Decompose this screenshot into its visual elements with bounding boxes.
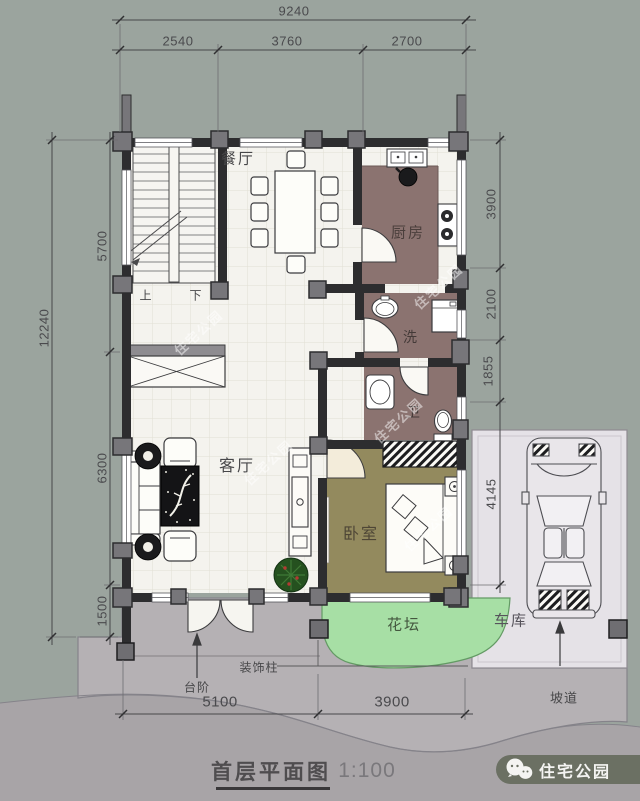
floor-plan-page: 9240 2540 3760 2700 12240 5700 6300 1500…: [0, 0, 640, 801]
dim-total-width: 9240: [279, 4, 310, 19]
dim-top-seg3: 2700: [392, 34, 423, 49]
wechat-icon: [505, 758, 533, 781]
wardrobe: [383, 441, 457, 467]
drawing-title: 首层平面图: [211, 756, 331, 786]
room-label-kitchen: 厨房: [391, 222, 425, 243]
steps-label: 台阶: [184, 679, 210, 696]
staircase: [127, 145, 215, 283]
dim-left-seg3: 1500: [95, 596, 110, 627]
dim-left-seg2: 6300: [95, 453, 110, 484]
room-label-dining: 餐厅: [221, 148, 255, 169]
drawing-scale: 1:100: [338, 759, 396, 783]
tv-cabinet: [289, 448, 311, 556]
dim-bottom-seg2: 3900: [374, 694, 409, 711]
room-label-flowerbed: 花坛: [387, 614, 421, 635]
dim-right-seg2: 2100: [484, 289, 499, 320]
dim-left-seg1: 5700: [95, 231, 110, 262]
dim-right-seg3: 1855: [481, 356, 496, 387]
dim-right-seg1: 3900: [484, 189, 499, 220]
room-label-garage: 车库: [494, 610, 528, 631]
ramp-label: 坡道: [550, 688, 578, 707]
title-underline: [216, 787, 330, 790]
dim-bottom-seg1: 5100: [202, 694, 237, 711]
dim-top-seg2: 3760: [272, 34, 303, 49]
brand-banner: 住宅公园: [496, 755, 640, 784]
plant: [274, 558, 308, 592]
car: [522, 438, 606, 618]
room-label-laundry: 洗: [403, 327, 419, 347]
decorative-column-label: 装饰柱: [239, 659, 278, 676]
stairs-up-label: 上: [139, 287, 152, 304]
room-label-bedroom: 卧室: [343, 520, 379, 544]
dim-top-seg1: 2540: [163, 34, 194, 49]
brand-name: 住宅公园: [539, 758, 611, 782]
floor-plan-graphics: [0, 0, 640, 801]
dim-total-height: 12240: [37, 309, 52, 348]
dim-right-seg4: 4145: [484, 479, 499, 510]
stairs-down-label: 下: [189, 287, 202, 304]
coffee-table-rug: [161, 466, 199, 526]
